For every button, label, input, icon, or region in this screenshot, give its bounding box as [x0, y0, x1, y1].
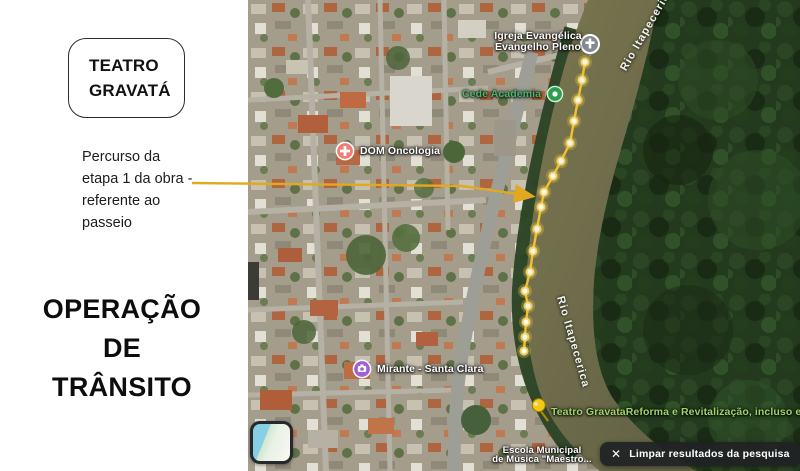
poi-academia-label: Cede Academia	[462, 88, 541, 100]
route-note-line: etapa 1 da obra -	[82, 168, 222, 190]
poi-igreja[interactable]: Igreja Evangélica Evangelho Pleno	[488, 31, 588, 52]
poi-oncologia[interactable]: DOM Oncologia	[335, 141, 440, 161]
academia-icon[interactable]	[546, 85, 564, 103]
satellite-map[interactable]: Igreja Evangélica Evangelho Pleno Cede A…	[248, 0, 800, 471]
camera-icon[interactable]	[352, 359, 372, 379]
clear-search-results-label: Limpar resultados da pesquisa	[629, 448, 789, 460]
slide-title-line: DE	[8, 329, 236, 368]
poi-academia[interactable]: Cede Academia	[462, 85, 564, 103]
poi-mirante[interactable]: Mirante - Santa Clara	[352, 359, 484, 379]
close-icon[interactable]: ✕	[611, 447, 621, 461]
poi-igreja-label-line2: Evangelho Pleno	[488, 42, 588, 53]
route-note-line: Percurso da	[82, 146, 222, 168]
teatro-gravata-box: TEATRO GRAVATÁ	[68, 38, 185, 118]
slide-title-line: TRÂNSITO	[8, 368, 236, 407]
poi-teatro-obra-label: Teatro GravataReforma e Revitalização, i…	[551, 406, 800, 418]
route-note-line: passeio	[82, 212, 222, 234]
satellite-imagery	[248, 0, 800, 471]
slide-title: OPERAÇÃO DE TRÂNSITO	[8, 290, 236, 407]
minimap-toggle[interactable]	[250, 421, 293, 464]
poi-mirante-label: Mirante - Santa Clara	[377, 363, 484, 375]
slide-title-line: OPERAÇÃO	[8, 290, 236, 329]
poi-escola-label-line2: de Música "Maestro...	[482, 455, 602, 464]
slide-canvas: TEATRO GRAVATÁ Percurso da etapa 1 da ob…	[0, 0, 800, 471]
teatro-gravata-label: TEATRO GRAVATÁ	[89, 53, 184, 104]
route-note: Percurso da etapa 1 da obra - referente …	[82, 146, 222, 234]
poi-teatro-obra[interactable]: Teatro GravataReforma e Revitalização, i…	[551, 406, 800, 418]
poi-oncologia-label: DOM Oncologia	[360, 145, 440, 157]
poi-escola[interactable]: Escola Municipal de Música "Maestro...	[482, 446, 602, 464]
hospital-icon[interactable]	[335, 141, 355, 161]
clear-search-results-button[interactable]: ✕ Limpar resultados da pesquisa	[600, 442, 800, 466]
poi-igreja-label-line1: Igreja Evangélica	[488, 31, 588, 42]
route-note-line: referente ao	[82, 190, 222, 212]
